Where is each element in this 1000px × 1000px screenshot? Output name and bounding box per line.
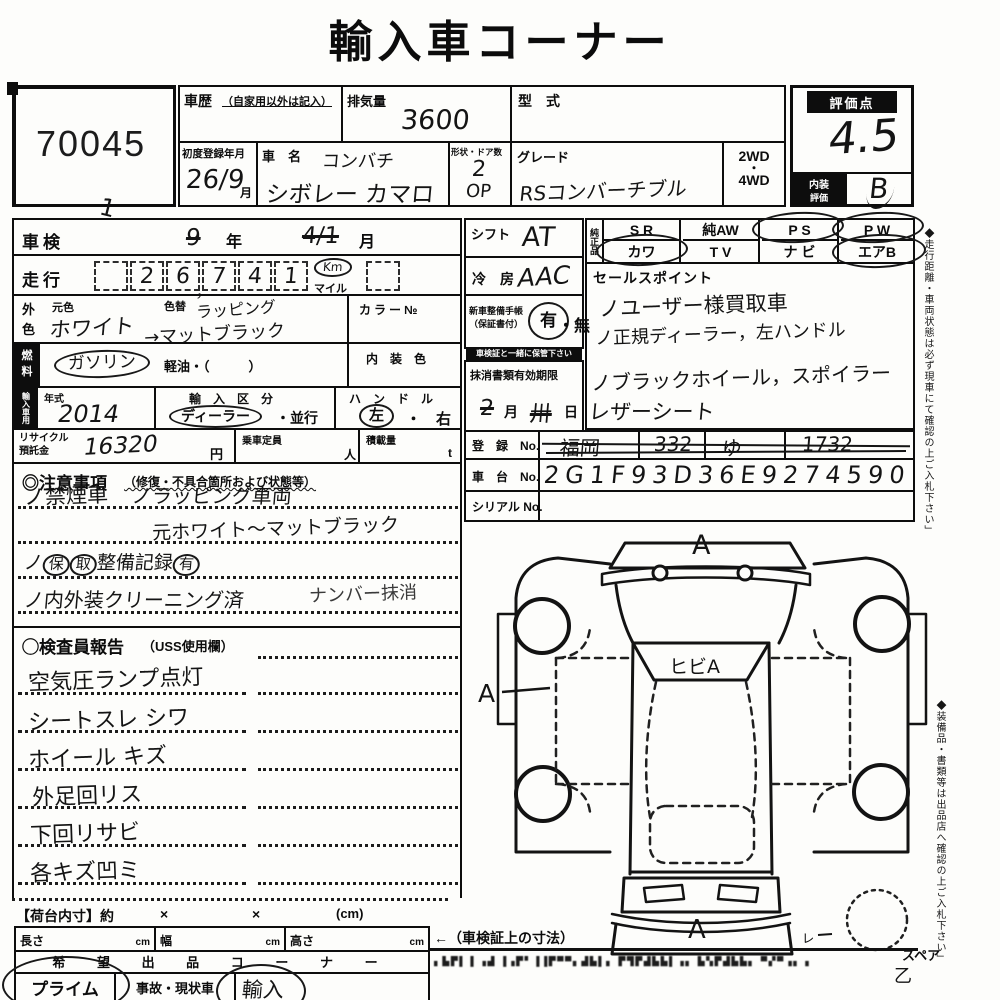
- shaken-year-unit: 年: [226, 228, 242, 252]
- width-label: 幅: [160, 932, 172, 949]
- model-code-label: 型 式: [518, 91, 560, 111]
- check-mark: ノ: [23, 552, 44, 574]
- warranty-sub: （保証書付）: [469, 317, 523, 330]
- equip-navi: ナ ビ: [784, 242, 816, 262]
- ac-label: 冷 房: [472, 269, 514, 289]
- interior-color-label: 内 装 色: [366, 350, 426, 367]
- interior-label-cell: 内装 評価: [793, 174, 845, 206]
- trunk-hinge-right: [738, 566, 752, 580]
- corner-circled-import: 輸入: [241, 974, 286, 1000]
- car-name-line1: コンバチ: [321, 147, 395, 173]
- mileage-label: 走行: [22, 266, 64, 291]
- footer-rule: [430, 948, 918, 951]
- import-class-label: 輸 入 区 分: [189, 390, 273, 407]
- cargo-times2: ×: [252, 906, 260, 922]
- inspector-label-sub: （USS使用欄）: [142, 636, 234, 655]
- height-label: 高さ: [290, 932, 314, 949]
- caution-line3-text: 整備記録: [96, 552, 174, 574]
- shaken-month-value: 4/1: [301, 223, 340, 249]
- recycle-divider2: [358, 430, 360, 462]
- chassis-label: 車 台 No.: [472, 468, 539, 485]
- cargo-unit: (cm): [336, 906, 363, 921]
- recycle-label: リサイクル 預託金: [19, 432, 69, 458]
- docs-day-unit: 日: [564, 402, 578, 422]
- warranty-box: 新車整備手帳 （保証書付） 有 ・無: [464, 294, 584, 349]
- cm-unit: cm: [410, 937, 424, 948]
- ac-value: AAC: [516, 260, 573, 293]
- equip-tv: T V: [710, 244, 732, 260]
- digit: 2: [139, 264, 155, 289]
- cargo-label: 【荷台内寸】約: [16, 906, 114, 926]
- recycle-row: リサイクル 預託金 16320 円 乗車定員 人 積載量 t: [12, 428, 462, 464]
- caution-line3: ノ保取整備記録有: [23, 548, 202, 576]
- wheel-right-rear: [855, 597, 909, 651]
- equip-cell-aw: 純AW: [683, 220, 760, 241]
- damage-mark-crack: ヒビA: [669, 656, 720, 678]
- inspector-line: 各キズ凹ミ: [29, 852, 140, 888]
- capacity-unit: 人: [344, 446, 356, 463]
- interior-color-divider: [347, 344, 349, 386]
- grade-value: RSコンバーチブル: [518, 172, 688, 207]
- docs-day-value: 卅: [529, 396, 554, 428]
- shift-value: AT: [521, 222, 557, 253]
- score-box: 評価点 4.5 内装 評価 B: [790, 85, 914, 207]
- warranty-label: 新車整備手帳: [469, 304, 523, 317]
- cargo-width-cell: 幅 cm: [154, 926, 286, 952]
- page-title: 輸入車コーナー: [0, 6, 1000, 70]
- first-reg-value: 26/9: [185, 165, 246, 195]
- vehicle-damage-diagram: A ヒビA A A ㇾ スペア 乙: [466, 522, 958, 984]
- shift-label: シフト: [471, 224, 510, 243]
- shift-box: シフト AT: [464, 218, 584, 258]
- sales-line: ノブラックホイール，スポイラー: [591, 357, 892, 396]
- color-no-divider: [347, 296, 349, 342]
- damage-mark-left-line: [502, 688, 550, 692]
- fuel-label-1: 燃: [14, 347, 40, 363]
- color-label-1: 外: [22, 302, 35, 317]
- footer-illegible-text: ▖▙▛▌▐ ▗▟ ▐▗▛▘▐▐▛▀▀▖▟▙▌▖ ▛▜▛▟▙▙▌▗▖ ▙▚▛▟▙▙…: [434, 956, 916, 967]
- digit: 1: [283, 264, 299, 289]
- caution-line4b: ナンバー抹消: [309, 578, 418, 608]
- dotted-rule: [258, 882, 458, 885]
- sales-label: セールスポイント: [593, 268, 713, 288]
- shape-doors-value: 2: [471, 157, 487, 182]
- history-box: 車歴 （自家用以外は記入）: [178, 85, 343, 143]
- registration-box: 登 録 No. 福岡 332 ゆ 1732 車 台 No. 2G1F93D36E…: [464, 430, 915, 522]
- fuel-diesel: 軽油・（ ）: [164, 356, 262, 375]
- recycle-unit: 円: [210, 444, 223, 463]
- damage-mark-top: A: [692, 530, 711, 561]
- first-reg-box: 初度登録年月 26/9 月: [178, 141, 258, 207]
- dotted-rule: [258, 692, 458, 695]
- interior-value: B: [865, 172, 896, 209]
- reg-label: 登 録 No.: [472, 437, 539, 454]
- sales-line: レザーシート: [588, 396, 716, 426]
- mileage-digit-cell: 1: [274, 261, 308, 291]
- mileage-digit-cell: [94, 261, 128, 291]
- wheel-left-front: [516, 767, 570, 821]
- equip-aw: 純AW: [702, 220, 739, 240]
- dotted-rule: [258, 730, 458, 733]
- fuel-row: 燃 料 ガソリン 軽油・（ ） 内 装 色: [12, 342, 462, 388]
- color-no-label: カラー№: [359, 301, 420, 318]
- length-label: 長さ: [20, 932, 44, 949]
- reg-row-divider2: [466, 490, 913, 492]
- serial-label: シリアル No.: [472, 498, 543, 515]
- load-unit: t: [448, 446, 452, 460]
- displacement-box: 排気量 3600: [341, 85, 512, 143]
- inspector-label: ◯検査員報告: [22, 633, 124, 658]
- mileage-row: 走行 2 6 7 4 1 ， Km マイル: [12, 254, 462, 296]
- docs-month-unit: 月: [504, 402, 518, 422]
- load-label: 積載量: [366, 432, 396, 447]
- import-label-cell: 輸入車用: [14, 388, 38, 428]
- score-label: 評価点: [829, 93, 874, 112]
- equip-cell-tv: T V: [683, 241, 760, 262]
- orig-color-value: ホワイト: [48, 310, 135, 344]
- fuel-label-2: 料: [14, 363, 40, 379]
- cargo-height-cell: 高さ cm: [284, 926, 430, 952]
- shaken-year-value: 9: [185, 225, 202, 251]
- grade-label: グレード: [517, 147, 569, 166]
- mileage-digit-cell: 2: [130, 261, 164, 291]
- shape-doors-value2: OP: [465, 181, 492, 202]
- grade-box: グレード RSコンバーチブル: [510, 141, 724, 207]
- auction-sheet: 輸入車コーナー 70045 車歴 （自家用以外は記入） 排気量 3600 型 式…: [0, 0, 1000, 1000]
- mileage-extra-cell: [366, 261, 400, 291]
- equip-cell-navi: ナ ビ: [762, 241, 839, 262]
- spare-tire-circle: [847, 890, 907, 950]
- trunk-hinge-left: [653, 566, 667, 580]
- cm-unit: cm: [136, 937, 150, 948]
- accident-label: 事故・現状車: [136, 978, 214, 997]
- dotted-rule: [258, 844, 458, 847]
- side-note-2: ◆装備品・書類等は出品店へ確認の上ご入札下さい」: [932, 700, 947, 1000]
- shape-doors-box: 形状・ドア数 2 OP: [448, 141, 512, 207]
- wheel-right-front: [854, 765, 908, 819]
- shaken-row: 車検 9 年 4/1 月: [12, 218, 462, 256]
- caution-line2: 元ホワイト〜マットブラック: [152, 510, 400, 546]
- dotted-rule: [258, 806, 458, 809]
- car-name-label: 車 名: [262, 146, 301, 165]
- lot-number-box: 70045: [12, 85, 176, 207]
- color-row: 外 色 元色 ホワイト 色替 ラッピング →マットブラック カラー№: [12, 294, 462, 344]
- score-value: 4.5: [826, 110, 902, 166]
- shaken-label: 車検: [22, 228, 64, 253]
- caution-line1b: ノラッピング車両: [131, 480, 294, 509]
- color-label: 外 色: [22, 300, 35, 340]
- cargo-times1: ×: [160, 906, 168, 922]
- caution-line1a: ノ禁煙車: [24, 479, 109, 512]
- recycle-label-2: 預託金: [19, 446, 49, 457]
- cargo-length-cell: 長さ cm: [14, 926, 156, 952]
- repaint-label: 色替: [164, 298, 186, 314]
- import-label: 輸入車用: [21, 392, 32, 424]
- inspector-line: 下回リサビ: [29, 814, 140, 850]
- interior-label2: 評価: [793, 191, 845, 204]
- import-row: 輸入車用 年式 2014 輸 入 区 分 ディーラー ・並行 ハ ン ド ル 左…: [12, 386, 462, 430]
- history-note: （自家用以外は記入）: [222, 93, 332, 109]
- color-label-2: 色: [22, 322, 35, 337]
- recycle-label-1: リサイクル: [19, 433, 69, 444]
- score-header: 評価点: [807, 91, 897, 113]
- cautions-box: ◎注意事項 （修復・不具合箇所および状態等） ノ禁煙車 ノラッピング車両 元ホワ…: [12, 462, 462, 628]
- recycle-value: 16320: [82, 431, 160, 461]
- circled-ho: 保: [42, 554, 71, 576]
- shaken-month-unit: 月: [359, 228, 375, 252]
- digit: 6: [175, 264, 191, 289]
- interior-cell-divider: [845, 174, 847, 206]
- car-name-box: 車 名 コンバチ シボレー カマロ: [256, 141, 450, 207]
- mileage-unit-km: Km: [313, 258, 352, 277]
- recycle-divider1: [234, 430, 236, 462]
- lot-number: 70045: [36, 123, 146, 165]
- reg-row-divider1: [466, 458, 913, 460]
- capacity-label: 乗車定員: [242, 432, 282, 447]
- fuel-gasoline: ガソリン: [54, 348, 151, 379]
- sales-box: セールスポイント ノユーザー様買取車 ノ正規ディーラー，左ハンドル ノブラックホ…: [585, 262, 915, 430]
- warranty-note-strip: 車検証と一緒に保管下さい: [466, 347, 582, 360]
- drive-box: 2WD ・ 4WD: [722, 141, 786, 207]
- fuel-label-cell: 燃 料: [14, 344, 40, 386]
- corner-scribble: 乙: [894, 966, 912, 984]
- cm-unit: cm: [266, 937, 280, 948]
- circled-ari: 有: [172, 554, 201, 576]
- drive-sep: ・: [724, 164, 784, 172]
- handle-label: ハ ン ド ル: [349, 390, 433, 407]
- dotted-rule: [12, 898, 448, 901]
- inspector-line: シートスレ シワ: [27, 699, 189, 737]
- year-value: 2014: [56, 400, 122, 428]
- import-divider2: [334, 388, 336, 428]
- inspector-line: 空気圧ランプ点灯: [27, 659, 203, 697]
- inspector-line: 外足回リス: [31, 776, 142, 812]
- side-note-1: ◆走行距離・車両状態は必ず現車にて確認の上ご入札下さい」: [920, 228, 935, 566]
- digit: 7: [211, 264, 227, 289]
- digit: 4: [247, 264, 263, 289]
- dotted-rule: [258, 768, 458, 771]
- inspector-line: ホイール キズ: [27, 738, 167, 775]
- damage-mark-small: ㇾ: [800, 928, 815, 946]
- drive-4wd: 4WD: [724, 172, 784, 188]
- mileage-digit-cell: 6: [166, 261, 200, 291]
- hood-outline: [650, 806, 754, 863]
- docs-box: 抹消書類有効期限 2 月 卅 日: [464, 360, 584, 432]
- headlight-left: [644, 885, 684, 902]
- damage-mark-left: A: [478, 679, 495, 708]
- reg-value-kana: ゆ: [721, 432, 744, 461]
- ac-box: 冷 房 AAC: [464, 256, 584, 296]
- wheel-left-rear: [515, 599, 569, 653]
- warranty-note: 車検証と一緒に保管下さい: [476, 348, 572, 359]
- circled-tori: 取: [69, 554, 98, 576]
- inspector-box: ◯検査員報告 （USS使用欄） 空気圧ランプ点灯 シートスレ シワ ホイール キ…: [12, 626, 462, 898]
- reg-value-prefecture: 福岡: [559, 432, 602, 461]
- chassis-value: 2G1F93D36E9274590: [543, 461, 913, 489]
- dotted-rule: [258, 656, 458, 659]
- headlight-right: [718, 885, 758, 902]
- interior-label1: 内装: [793, 176, 845, 191]
- caution-line4: ノ内外装クリーニング済: [23, 584, 246, 613]
- car-name-line2: シボレー カマロ: [265, 175, 436, 209]
- history-label: 車歴: [184, 91, 212, 111]
- import-divider1: [154, 388, 156, 428]
- mileage-digit-cell: 4: [238, 261, 272, 291]
- handle-left: 左: [359, 404, 394, 428]
- handle-right: ・ 右: [406, 408, 451, 429]
- import-parallel: ・並行: [276, 408, 318, 428]
- displacement-value: 3600: [400, 105, 471, 136]
- first-reg-unit: 月: [240, 184, 252, 201]
- damage-mark-bottom: A: [688, 915, 706, 945]
- model-code-box: 型 式: [510, 85, 786, 143]
- import-dealer: ディーラー: [169, 405, 262, 428]
- docs-month-value: 2: [479, 396, 495, 421]
- first-reg-label: 初度登録年月: [182, 146, 245, 161]
- displacement-label: 排気量: [347, 91, 386, 110]
- docs-label: 抹消書類有効期限: [470, 367, 558, 383]
